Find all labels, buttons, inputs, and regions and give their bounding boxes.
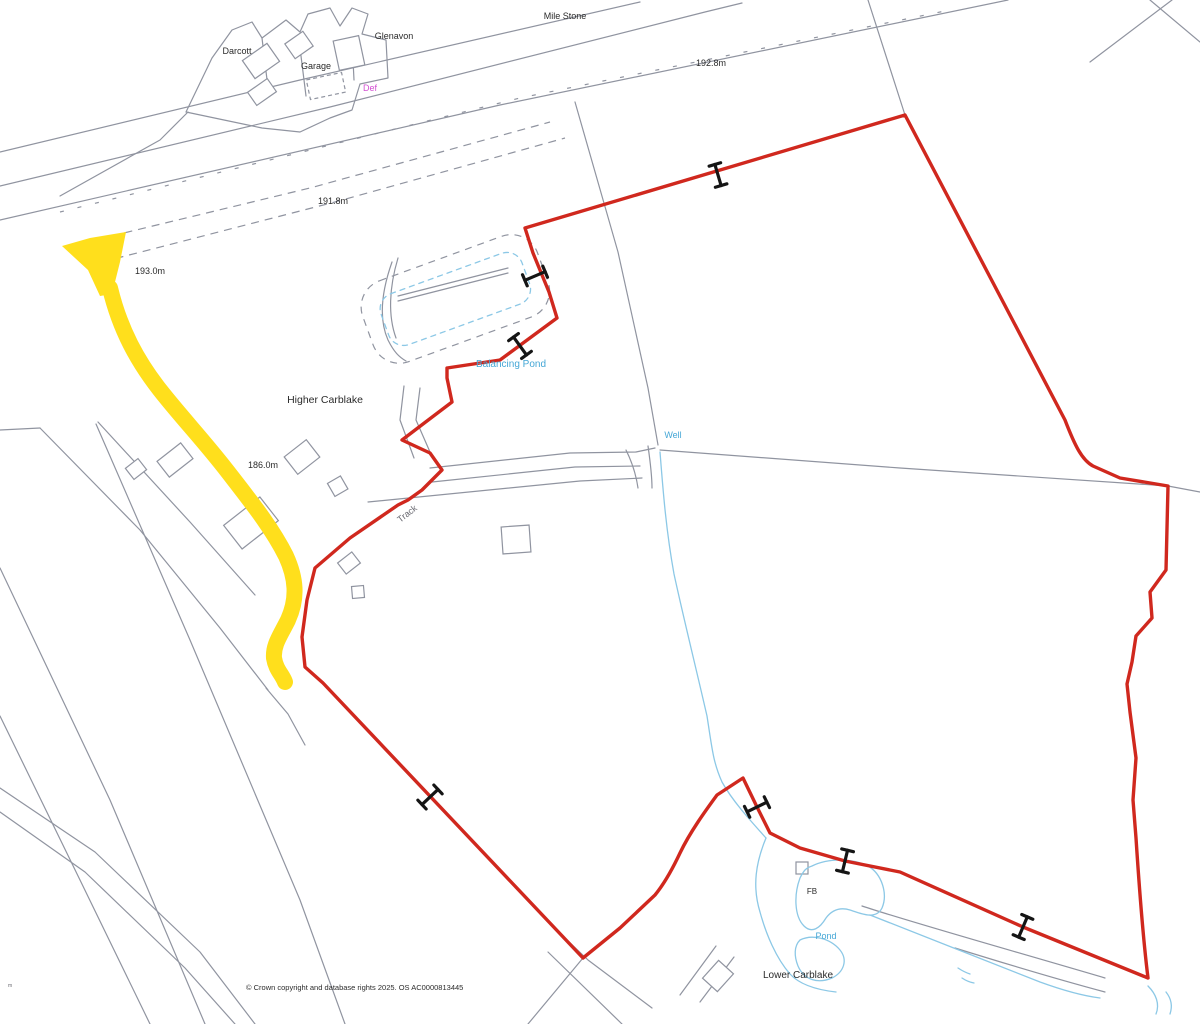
label-spot-186-0: 186.0m [248, 460, 278, 470]
label-fb: FB [807, 887, 817, 896]
label-pond: Pond [815, 931, 836, 941]
label-spot-191-8: 191.8m [318, 196, 348, 206]
yellow-road [110, 288, 295, 682]
label-spot-193-0: 193.0m [135, 266, 165, 276]
label-higher-carblake: Higher Carblake [287, 394, 363, 406]
map-viewport: DarcottGlenavonGarageDefMile Stone192.8m… [0, 0, 1200, 1024]
label-glenavon: Glenavon [375, 31, 414, 41]
gray-linework [0, 0, 1200, 1024]
access-point-marker [744, 797, 769, 817]
label-darcott: Darcott [222, 46, 252, 56]
label-spot-192-8: 192.8m [696, 58, 726, 68]
label-balancing-pond: Balancing Pond [476, 359, 546, 370]
label-well: Well [664, 430, 681, 440]
map-labels: DarcottGlenavonGarageDefMile Stone192.8m… [8, 11, 837, 992]
map-canvas: DarcottGlenavonGarageDefMile Stone192.8m… [0, 0, 1200, 1024]
access-point-marker [1013, 915, 1033, 940]
dashed-linework [60, 10, 950, 371]
copyright-text: © Crown copyright and database rights 20… [246, 983, 463, 992]
label-lower-carblake: Lower Carblake [763, 970, 833, 981]
label-garage: Garage [301, 61, 331, 71]
access-point-marker [709, 163, 727, 188]
site-boundary [302, 115, 1168, 978]
access-point-marker [509, 334, 532, 359]
label-def: Def [363, 83, 378, 93]
stream [660, 452, 766, 838]
label-scale-mark: m [8, 983, 12, 989]
label-mile-stone: Mile Stone [544, 11, 587, 21]
